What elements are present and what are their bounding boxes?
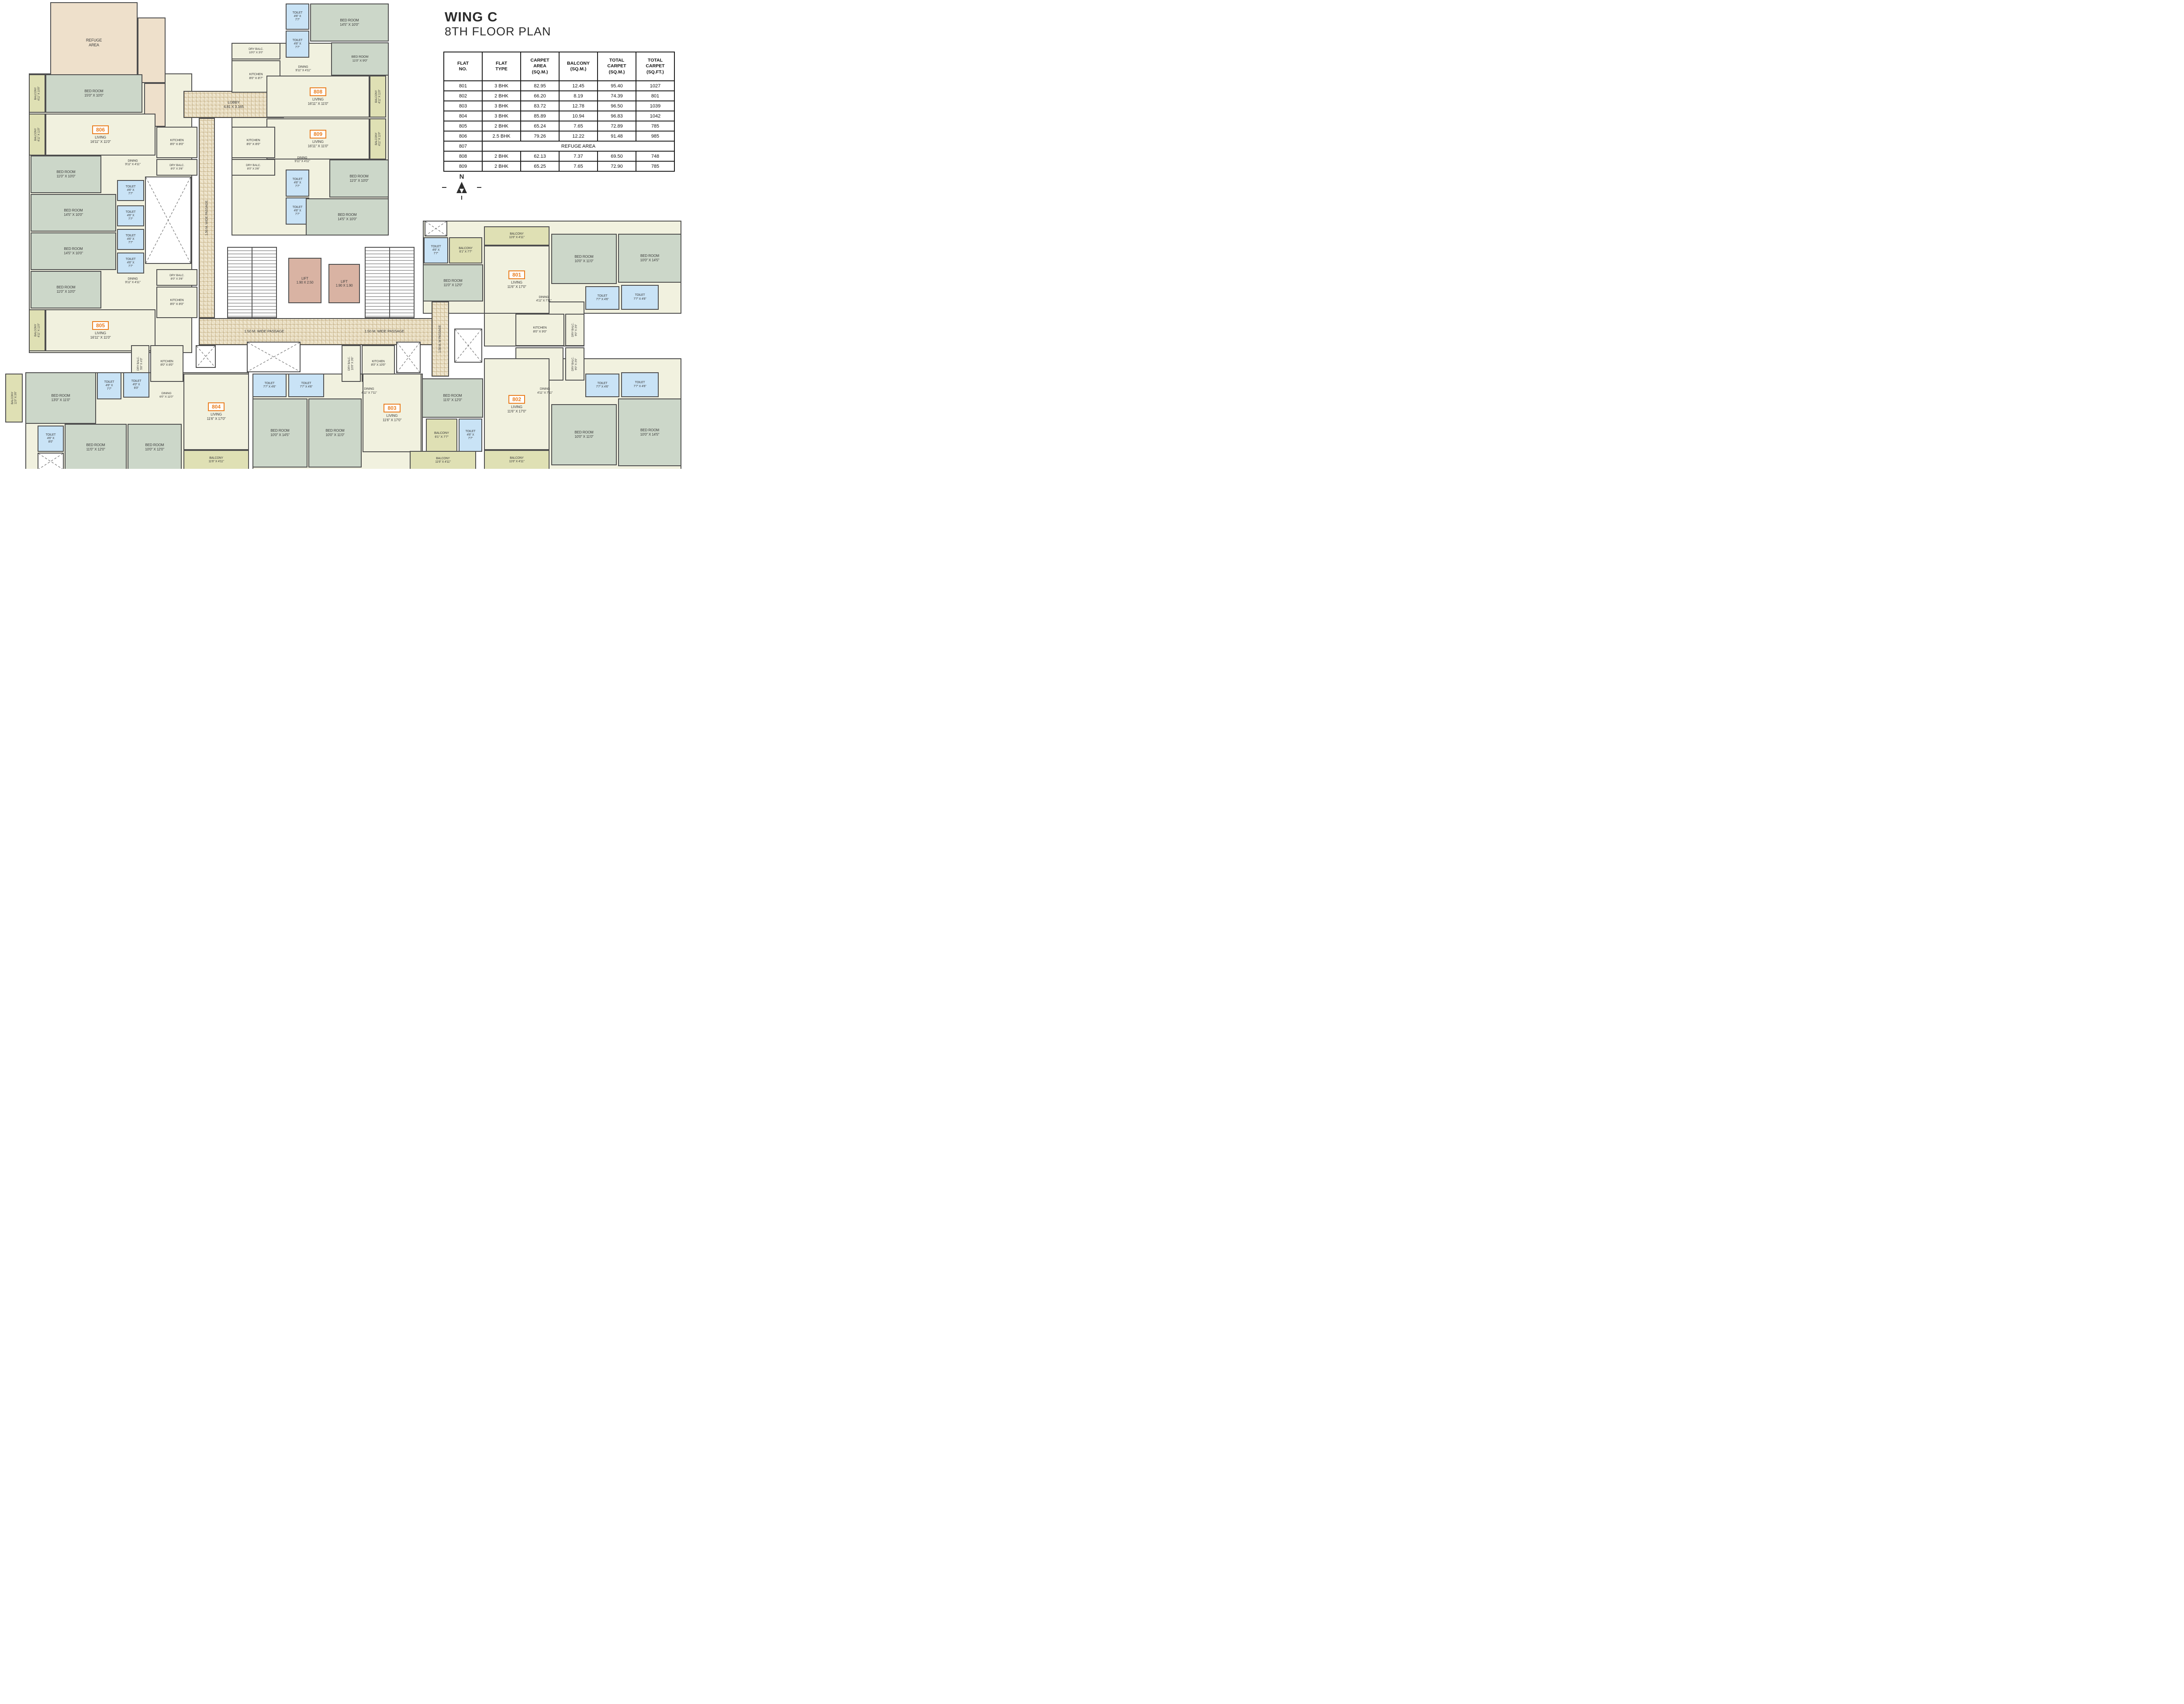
flat-value: 748 [636,151,674,161]
room-flat805-bedroom-11x10: BED ROOM11'0" X 10'0" [31,271,101,308]
flat-badge-809: 809 [310,130,326,139]
room-label: BED ROOM11'0" X 12'0" [443,394,462,402]
room-label: BALCONY11'0" X 3'6" [11,391,17,404]
room-flat808-bedroom-11x9: BED ROOM11'0" X 9'0" [331,42,389,76]
room-flat802-balcony-bottom: BALCONY11'6" X 4'11" [484,450,549,469]
flat-row-808: 8082 BHK62.137.3769.50748 [444,151,674,161]
room-flat801-toilet-1: TOILET7'7" X 4'6" [585,286,619,310]
room-label: BALCONY11'6" X 4'11" [435,457,450,464]
flat-row-802: 8022 BHK66.208.1974.39801 [444,91,674,101]
room-flat804-dining: DINING6'0" X 11'0" [150,383,183,408]
room-label: LOBBY4.81 X 3.165 [224,100,244,109]
room-passage-vertical-left: 1.50 M. WIDE PASSAGE [199,118,215,318]
flat-value: 3 BHK [482,101,521,111]
room-flat804-toilet-1: TOILET4'6" X7'7" [97,372,121,399]
room-label: DINING6'0" X 11'0" [159,392,173,399]
room-label: DINING9'11" X 4'11" [125,277,140,284]
room-label: TOILET4'6" X7'7" [126,234,136,245]
room-flat809-dining: DINING9'11" X 4'11" [278,149,327,170]
room-label: REFUGEAREA [86,38,102,47]
flat-value: 85.89 [521,111,559,121]
room-label: BED ROOM15'0" X 10'0" [84,89,104,97]
flat-badge-806: 806 [92,125,109,134]
room-flat804-bedroom-13x11: BED ROOM13'0" X 11'0" [25,372,96,424]
room-label: BED ROOM10'0" X 12'0" [145,443,164,451]
flat-value: 1027 [636,81,674,91]
room-flat806-bedroom-15x10: BED ROOM15'0" X 10'0" [45,74,142,113]
room-label: BED ROOM10'0" X 14'5" [640,254,660,262]
flat-value: REFUGE AREA [482,141,674,151]
room-label: TOILET7'7" X 4'6" [633,381,646,388]
room-label: DINING9'11" X 4'11" [295,66,311,73]
flat-no: 805 [444,121,482,131]
room-flat801-drybalc: DRY BALC.9'0" X 3'6" [565,314,584,346]
flat-no: 809 [444,161,482,171]
room-label: TOILET4'6" X7'7" [293,11,303,22]
room-label: TOILET4'6" X7'7" [466,430,476,440]
stair-divider [252,248,252,317]
flat-value: 82.95 [521,81,559,91]
room-label: BED ROOM11'0" X 9'0" [352,55,369,62]
room-shaft-2 [247,342,301,372]
room-label: DRY BALC.8'0" X 3'6" [246,164,261,171]
room-label: DINING4'11" X 7'11" [537,388,553,395]
flat-value: 91.48 [598,131,636,141]
flat-value: 72.90 [598,161,636,171]
room-flat803-bedroom-10x14: BED ROOM10'0" X 14'5" [252,398,308,468]
room-flat806-dining: DINING9'11" X 4'11" [110,153,156,173]
room-label: DRY BALC.5'8" X 4'0" [137,357,143,371]
room-flat806-balcony-living: BALCONY4'11" X 11'0" [29,114,45,156]
flat-value: 785 [636,121,674,131]
flat-no: 802 [444,91,482,101]
room-flat802-bedroom-10x14: BED ROOM10'0" X 14'5" [618,398,681,466]
room-stair-west [227,247,277,318]
room-flat804-kitchen: KITCHEN8'0" X 8'0" [150,345,183,382]
flat-value: 12.78 [559,101,598,111]
room-label: LIVING16'11" X 11'0" [90,331,111,339]
room-label: BED ROOM11'0" X 12'0" [443,279,462,287]
flat-value: 65.24 [521,121,559,131]
flat-value: 2 BHK [482,151,521,161]
room-flat802-dining: DINING4'11" X 7'11" [520,379,570,403]
room-flat809-balcony: BALCONY4'11" X 11'0" [370,118,386,159]
room-label: BALCONY4'11" X 11'0" [34,323,41,337]
flat-value: 69.50 [598,151,636,161]
room-passage-label-west: 1.50 M. WIDE PASSAGE [227,326,301,336]
room-label: TOILET4'0" X6'0" [131,380,142,390]
room-flat809-drybalc: DRY BALC.8'0" X 3'6" [232,159,275,176]
room-flat801-entry-toilet: TOILET4'6" X7'7" [424,237,448,263]
room-flat802-living: 802LIVING11'6" X 17'0" [484,358,549,450]
room-flat808-bedroom-14x10: BED ROOM14'5" X 10'0" [310,3,389,42]
room-shaft-3 [396,342,421,373]
room-label: BALCONY4'11" X 11'0" [375,132,381,146]
room-label: 1.50 M. W PASSAGE [439,325,442,353]
flat-no: 807 [444,141,482,151]
room-flat809-bedroom-11x10: BED ROOM11'0" X 10'0" [329,159,389,197]
room-label: BED ROOM14'5" X 10'0" [338,213,357,221]
flat-value: 7.65 [559,121,598,131]
flat-badge-801: 801 [508,270,525,279]
north-label: N [460,173,464,180]
flat-value: 3 BHK [482,81,521,91]
room-label: LIVING16'11" X 11'0" [90,135,111,144]
area-table-header: FLATNO.FLATTYPECARPETAREA(SQ.M.)BALCONY(… [444,52,674,81]
room-label: BED ROOM14'5" X 10'0" [64,247,83,255]
flat-value: 801 [636,91,674,101]
room-label: TOILET7'7" X 4'6" [300,382,312,389]
room-flat802-toilet-2: TOILET7'7" X 4'6" [621,372,659,397]
flat-value: 72.89 [598,121,636,131]
room-stair-east [365,247,415,318]
room-flat806-drybalc: DRY BALC.8'0" X 3'6" [156,159,197,176]
room-label: DINING4'11" X 7'11" [361,388,377,395]
column-header-0: FLATNO. [444,52,482,81]
flat-value: 83.72 [521,101,559,111]
room-shaft-4 [454,329,482,363]
column-header-4: TOTALCARPET(SQ.M.) [598,52,636,81]
room-flat808-toilet-1: TOILET4'6" X7'7" [286,3,309,30]
room-label: TOILET4'6" X7'7" [293,39,303,49]
room-label: LIVING11'6" X 17'0" [207,412,225,421]
column-header-5: TOTALCARPET(SQ.FT.) [636,52,674,81]
room-label: BALCONY6'1" X 7'7" [434,431,449,439]
room-label: TOILET4'6" X7'7" [431,245,441,256]
room-shared-bedroom-14x10-a: BED ROOM14'5" X 10'0" [31,194,116,232]
room-flat803-toilet-2: TOILET7'7" X 4'6" [288,374,324,397]
flat-row-807: 807REFUGE AREA [444,141,674,151]
room-label: 1.50 M. WIDE PASSAGE [244,329,284,333]
room-label: TOILET4'6" X7'7" [104,381,114,391]
flat-row-804: 8043 BHK85.8910.9496.831042 [444,111,674,121]
flat-row-803: 8033 BHK83.7212.7896.501039 [444,101,674,111]
flat-value: 95.40 [598,81,636,91]
room-flat804-bedroom-11x12: BED ROOM11'0" X 12'0" [65,424,127,469]
room-label: DRY BALC.10'0" X 3'6" [348,357,354,371]
room-label: BALCONY11'6" X 4'11" [509,232,524,239]
room-flat808-balcony: BALCONY4'11" X 11'0" [370,76,386,118]
room-flat803-bedroom-11x12: BED ROOM11'0" X 12'0" [422,378,483,418]
room-passage-label-east: 1.50 M. WIDE PASSAGE [347,326,422,336]
room-label: BED ROOM13'0" X 11'0" [51,394,70,402]
room-shaft-1 [145,177,191,264]
flat-value: 2 BHK [482,91,521,101]
room-label: TOILET4'6" X7'7" [293,178,303,188]
room-label: 1.50 M. WIDE PASSAGE [364,329,404,333]
flat-value: 7.65 [559,161,598,171]
column-header-3: BALCONY(SQ.M.) [559,52,598,81]
room-flat802-balcony-entry: BALCONY6'1" X 7'7" [426,419,457,452]
flat-value: 62.13 [521,151,559,161]
room-flat802-bedroom-10x11: BED ROOM10'0" X 11'0" [551,404,617,465]
room-label: BED ROOM14'5" X 10'0" [340,18,359,27]
room-label: BED ROOM10'0" X 11'0" [325,429,344,437]
room-lift-2: LIFT1.90 X 1.90 [328,264,360,303]
room-label: KITCHEN8'0" X 8'0" [170,139,183,146]
room-label: BALCONY4'11" X 11'0" [34,128,41,142]
room-label: KITCHEN8'0" X 8'0" [160,360,173,367]
floor-title: 8TH FLOOR PLAN [445,24,551,38]
flat-value: 7.37 [559,151,598,161]
room-flat803-balcony: BALCONY11'6" X 4'11" [410,451,476,469]
room-flat804-living: 804LIVING11'6" X 17'0" [183,374,249,450]
flat-value: 96.83 [598,111,636,121]
floor-plan-sheet: WING C 8TH FLOOR PLAN FLATNO.FLATTYPECAR… [0,0,685,469]
room-label: BALCONY11'6" X 4'11" [208,457,224,464]
room-flat805-dining: DINING9'11" X 4'11" [110,271,156,291]
room-label: DINING4'11" X 7'11" [536,296,551,303]
room-flat804-bedroom-10x12: BED ROOM10'0" X 12'0" [128,424,182,469]
column-header-2: CARPETAREA(SQ.M.) [521,52,559,81]
room-label: KITCHEN8'0" X 9'0" [533,326,546,333]
flat-no: 803 [444,101,482,111]
room-label: 1.50 M. WIDE PASSAGE [205,201,209,236]
page-title: WING C 8TH FLOOR PLAN [445,10,551,38]
room-label: BED ROOM10'0" X 14'5" [270,429,290,437]
north-arrow: N [442,173,481,211]
room-flat808-drybalc: DRY BALC.10'0" X 3'0" [232,43,280,59]
room-label: BED ROOM10'0" X 11'0" [574,430,593,439]
room-label: LIVING11'6" X 17'0" [383,414,401,422]
room-flat806-kitchen: KITCHEN8'0" X 8'0" [156,127,197,158]
room-flat802-entry-toilet: TOILET4'6" X7'7" [459,419,482,452]
flat-no: 801 [444,81,482,91]
room-flat806-balcony-bedroom: BALCONY4'11" X 10'0" [29,74,45,113]
room-label: BALCONY4'11" X 10'0" [34,87,41,101]
room-lift-1: LIFT1.90 X 2.50 [288,258,321,303]
room-shared-bedroom-14x10-b: BED ROOM14'5" X 10'0" [31,232,116,270]
flat-no: 806 [444,131,482,141]
room-label: TOILET7'7" X 4'6" [596,382,608,389]
flat-value: 8.19 [559,91,598,101]
flat-value: 985 [636,131,674,141]
flat-row-801: 8013 BHK82.9512.4595.401027 [444,81,674,91]
room-flat809-kitchen: KITCHEN8'0" X 8'0" [232,127,275,158]
room-label: DINING9'11" X 4'11" [125,159,140,166]
room-shared-toilet-1: TOILET4'6" X7'7" [117,180,144,201]
flat-badge-804: 804 [208,402,225,411]
room-shared-toilet-4: TOILET4'6" X7'7" [117,253,144,274]
flat-value: 1042 [636,111,674,121]
flat-value: 74.39 [598,91,636,101]
flat-value: 2 BHK [482,121,521,131]
flat-value: 96.50 [598,101,636,111]
flat-value: 2 BHK [482,161,521,171]
room-flat801-bedroom-11x12: BED ROOM11'0" X 12'0" [423,264,483,301]
room-flat802-toilet-1: TOILET7'7" X 4'6" [585,374,619,397]
room-flat803-toilet-1: TOILET7'7" X 4'6" [252,374,287,397]
room-label: TOILET7'7" X 4'6" [633,294,646,301]
room-label: DRY BALC.10'0" X 3'0" [249,48,263,55]
room-shaft-5 [425,221,447,236]
room-label: BALCONY11'6" X 4'11" [509,457,524,464]
room-flat801-balcony-entry: BALCONY6'1" X 7'7" [449,237,482,263]
room-flat801-toilet-2: TOILET7'7" X 4'6" [621,285,659,310]
column-header-1: FLATTYPE [482,52,521,81]
room-label: DINING9'11" X 4'11" [294,156,310,163]
room-label: DRY BALC.8'0" X 3'6" [169,164,184,171]
room-refuge-area-ext [138,17,166,83]
room-label: LIVING16'11" X 11'0" [308,97,328,106]
flat-row-806: 8062.5 BHK79.2612.2291.48985 [444,131,674,141]
room-label: TOILET4'6" X8'0" [46,433,56,444]
flat-badge-805: 805 [92,321,109,330]
room-label: BED ROOM10'0" X 14'5" [640,428,660,436]
room-label: DRY BALC.8'0" X 3'6" [169,274,184,281]
flat-value: 3 BHK [482,111,521,121]
room-shaft-7 [38,453,64,469]
room-label: LIFT1.90 X 1.90 [336,280,353,288]
flat-value: 10.94 [559,111,598,121]
flat-row-805: 8052 BHK65.247.6572.89785 [444,121,674,131]
flat-no: 804 [444,111,482,121]
room-label: LIFT1.90 X 2.50 [297,277,314,285]
room-flat805-drybalc: DRY BALC.8'0" X 3'6" [156,269,197,286]
room-label: BED ROOM11'0" X 12'0" [86,443,105,451]
room-label: LIVING11'6" X 17'0" [507,405,526,413]
flat-value: 79.26 [521,131,559,141]
room-flat804-toilet-2: TOILET4'0" X6'0" [123,372,149,398]
room-label: KITCHEN8'0" X 8'0" [170,298,183,306]
room-label: TOILET4'6" X7'7" [293,206,303,216]
room-flat806-living: 806LIVING16'11" X 11'0" [45,114,156,156]
room-passage-vertical-right: 1.50 M. W PASSAGE [432,301,449,377]
room-flat803-bedroom-10x11: BED ROOM10'0" X 11'0" [308,398,362,468]
room-flat801-kitchen: KITCHEN8'0" X 9'0" [515,314,564,346]
room-shared-toilet-2: TOILET4'6" X7'7" [117,205,144,226]
flat-value: 12.45 [559,81,598,91]
flat-value: 12.22 [559,131,598,141]
room-flat801-bedroom-10x11: BED ROOM10'0" X 11'0" [551,234,617,284]
room-flat804-balcony: BALCONY11'6" X 4'11" [183,450,249,469]
room-flat801-dining: DINING4'11" X 7'11" [520,286,568,312]
room-label: BALCONY4'11" X 11'0" [375,90,381,104]
room-shaft-6 [196,345,216,368]
room-label: BED ROOM11'0" X 10'0" [349,174,368,183]
flat-value: 66.20 [521,91,559,101]
room-flat801-bedroom-10x14: BED ROOM10'0" X 14'5" [618,234,681,283]
flat-badge-808: 808 [310,87,326,96]
flat-value: 785 [636,161,674,171]
room-label: TOILET4'6" X7'7" [126,185,136,196]
flat-value: 65.25 [521,161,559,171]
room-label: TOILET7'7" X 4'6" [596,294,608,301]
room-label: KITCHEN8'0" X 8'0" [246,139,260,146]
room-flat805-kitchen: KITCHEN8'0" X 8'0" [156,287,197,318]
wing-title: WING C [445,10,551,24]
room-flat805-balcony: BALCONY4'11" X 11'0" [29,309,45,351]
room-flat804-toilet-3: TOILET4'6" X8'0" [38,426,64,452]
flat-no: 808 [444,151,482,161]
room-label: BED ROOM14'5" X 10'0" [64,208,83,217]
flat-badge-803: 803 [384,404,400,412]
room-flat809-toilet-1: TOILET4'6" X7'7" [286,170,309,197]
room-flat809-bedroom-14x10: BED ROOM14'5" X 10'0" [306,198,389,236]
area-table: FLATNO.FLATTYPECARPETAREA(SQ.M.)BALCONY(… [443,52,675,172]
room-label: DRY BALC.9'0" X 3'6" [571,323,578,337]
area-table-body: 8013 BHK82.9512.4595.4010278022 BHK66.20… [444,81,674,171]
room-flat804-balcony-left: BALCONY11'0" X 3'6" [5,374,23,423]
room-label: TOILET7'7" X 4'6" [263,382,276,389]
room-shared-toilet-3: TOILET4'6" X7'7" [117,229,144,250]
room-shared-bedroom-11x10-a: BED ROOM11'0" X 10'0" [31,156,101,193]
room-label: BED ROOM10'0" X 11'0" [574,255,593,263]
room-label: BALCONY6'1" X 7'7" [459,247,473,254]
flat-value: 2.5 BHK [482,131,521,141]
room-label: KITCHEN8'0" X 10'0" [371,360,385,367]
room-flat802-drybalc: DRY BALC.9'0" X 3'6" [565,347,584,381]
room-flat808-living: 808LIVING16'11" X 11'0" [266,76,370,118]
room-label: BED ROOM11'0" X 10'0" [56,170,75,178]
room-label: TOILET4'6" X7'7" [126,258,136,268]
room-label: DRY BALC.9'0" X 3'6" [571,357,578,371]
stair-divider [389,248,390,317]
room-label: KITCHEN8'0" X 8'7" [249,73,263,80]
room-label: LIVING16'11" X 11'0" [308,140,328,148]
room-flat801-balcony-top: BALCONY11'6" X 4'11" [484,226,549,246]
flat-value: 1039 [636,101,674,111]
room-flat808-toilet-2: TOILET4'6" X7'7" [286,31,309,58]
room-refuge-area: REFUGEAREA [50,2,138,83]
room-label: TOILET4'6" X7'7" [126,211,136,221]
room-flat803-drybalc: DRY BALC.10'0" X 3'6" [342,345,361,382]
flat-row-809: 8092 BHK65.257.6572.90785 [444,161,674,171]
room-label: BED ROOM11'0" X 10'0" [56,285,75,294]
